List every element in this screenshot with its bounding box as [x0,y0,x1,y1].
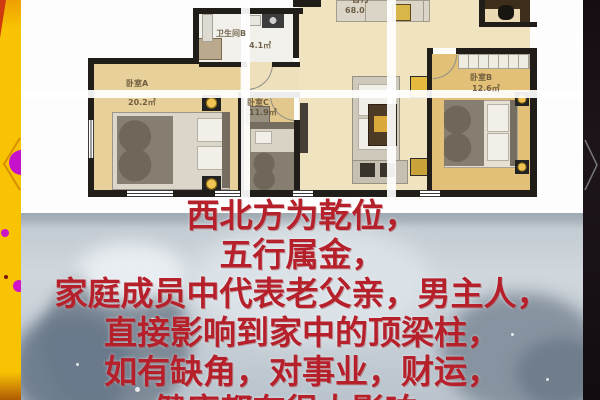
caption-line: 如有缺角，对事业，财运， [21,352,583,391]
room-label-bedroom-a: 卧室A [126,79,148,88]
magenta-dot [13,280,21,292]
caption-line: 直接影响到家中的顶梁柱， [21,313,583,352]
magenta-dot [1,229,9,237]
wall [88,58,94,120]
living-side-table [410,158,428,176]
room-area-bedroom-b: 12.6㎡ [472,84,500,93]
room-label-living: 客厅 [351,0,371,5]
video-frame: 客厅 68.0 卫生间B 4.1㎡ 卧室A 20.2㎡ 卧室C 11.9㎡ 卧室… [0,0,600,400]
wall [427,54,432,190]
floorplan: 客厅 68.0 卫生间B 4.1㎡ 卧室A 20.2㎡ 卧室C 11.9㎡ 卧室… [21,0,583,213]
wall [272,62,300,67]
room-area-bathroom: 4.1㎡ [249,41,271,50]
bedroom-b-headboard [510,100,517,166]
wall [193,8,199,64]
bedroom-c-blanket [250,152,294,190]
bedroom-a-headboard [222,112,230,188]
living-tv-unit [300,103,308,153]
window [88,120,94,158]
room-area-bedroom-c: 11.9㎡ [249,108,277,117]
caption-line: 健康都有很大影响， [21,391,583,400]
wall [294,120,300,190]
room-label-bathroom: 卫生间B [216,29,246,38]
room-label-bedroom-b: 卧室B [470,73,492,82]
bedroom-c-pillow [255,131,272,144]
living-table-decor [374,116,388,132]
bedroom-a-pillow [197,118,223,142]
bedroom-b-blanket [444,100,484,166]
feng-shui-grid-line-vertical [387,0,396,197]
bedroom-b-wardrobe [458,54,530,69]
study-chair [498,5,514,20]
caption-line: 家庭成员中代表老父亲，男主人， [21,274,583,313]
wall [479,22,537,27]
wall [88,58,199,64]
wall [199,62,247,67]
room-label-bedroom-c: 卧室C [247,98,269,107]
study-desk [520,0,530,24]
living-chair [360,163,375,177]
red-dot [4,275,8,279]
wall [293,0,321,7]
room-area-living: 68.0 [345,6,365,15]
bedroom-b-pillow [487,133,509,161]
bedroom-a-blanket [117,116,173,184]
caption: 西北方为乾位， 五行属金， 家庭成员中代表老父亲，男主人， 直接影响到家中的顶梁… [21,196,583,400]
corner-sliver [0,0,6,38]
bedroom-b-nightstand-lamp [515,160,529,174]
left-accent-bar [0,0,21,400]
bathroom-washer [262,13,284,28]
caption-line: 西北方为乾位， [21,196,583,235]
wall [530,48,537,197]
bathroom-shelf [202,14,213,42]
wall [293,8,299,58]
wall [456,48,537,54]
right-edge-bar [583,0,600,400]
next-chevron-icon[interactable] [583,138,600,192]
room-area-bedroom-a: 20.2㎡ [128,98,156,107]
bedroom-c-headboard [250,122,294,129]
bedroom-b-pillow [487,104,509,132]
caption-line: 五行属金， [21,235,583,274]
bedroom-a-pillow [197,146,223,170]
